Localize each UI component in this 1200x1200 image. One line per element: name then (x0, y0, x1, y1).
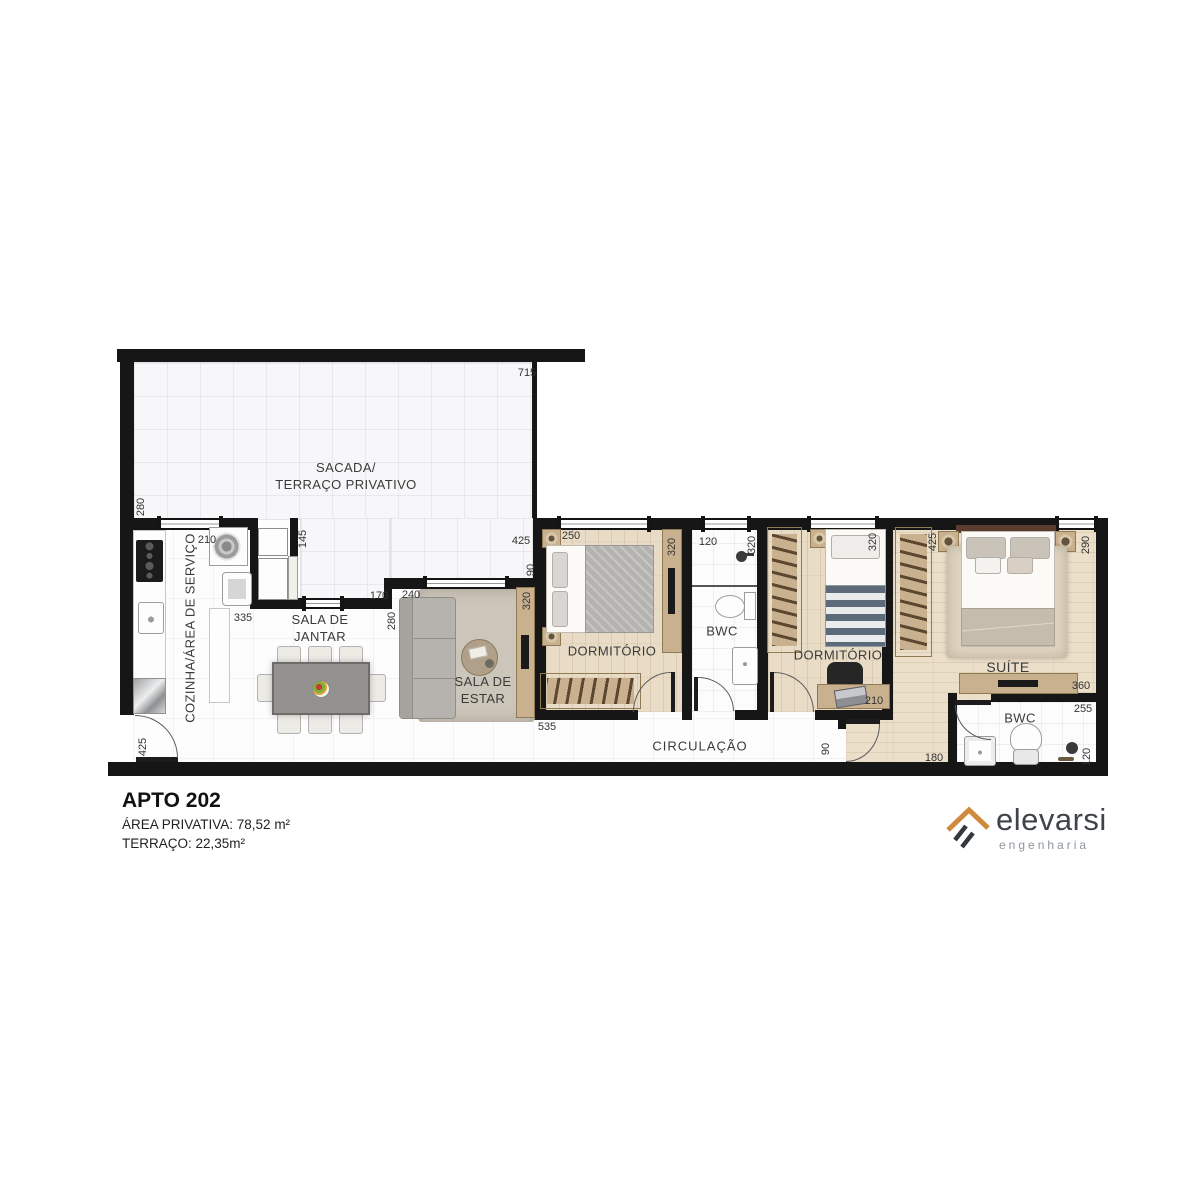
kitchen-island-counter (209, 608, 230, 703)
pillow (552, 552, 568, 588)
wall-bedroom1-right (682, 518, 692, 720)
dimension-label: 280 (135, 498, 147, 516)
room-label-sacada: SACADA/TERRAÇO PRIVATIVO (275, 460, 416, 494)
dimension-label: 145 (297, 530, 309, 548)
dimension-label: 320 (521, 592, 533, 610)
dining-chair (368, 674, 386, 702)
dimension-label: 425 (512, 535, 530, 547)
pillow (552, 591, 568, 627)
sofa (399, 597, 456, 719)
toilet-tank (744, 592, 756, 620)
wardrobe (540, 673, 641, 709)
dimension-label: 335 (234, 612, 252, 624)
dimension-label: 240 (402, 589, 420, 601)
terrace-floor (133, 362, 533, 520)
coffee-table-cup (485, 659, 494, 668)
tv-living (521, 635, 529, 669)
terrace-floor-ext-b (390, 518, 533, 580)
toilet-seat (1013, 749, 1039, 765)
laundry-tub (222, 572, 252, 606)
floorplan-page: SACADA/TERRAÇO PRIVATIVO COZINHA/ÁREA DE… (0, 0, 1200, 1200)
pillow (966, 537, 1006, 559)
dining-chair (277, 712, 301, 734)
room-label-circulacao: CIRCULAÇÃO (652, 739, 747, 756)
toilet-bowl (715, 595, 745, 618)
suite-window (1056, 518, 1097, 530)
washing-machine (209, 527, 248, 566)
living-window (424, 578, 508, 589)
dimension-label: 120 (1081, 748, 1093, 766)
pillow (1007, 557, 1033, 574)
dimension-label: 535 (538, 721, 556, 733)
pillow (1010, 537, 1050, 559)
wall-corridor-b (735, 710, 768, 720)
room-label-suite: SUÍTE (986, 658, 1029, 676)
dimension-label: 320 (666, 538, 678, 556)
dimension-label: 290 (1080, 536, 1092, 554)
dining-chair (339, 712, 363, 734)
bathroom-sink (732, 647, 758, 685)
dimension-label: 360 (1072, 680, 1090, 692)
dimension-label: 210 (198, 534, 216, 546)
cooktop (136, 540, 163, 582)
bed-double-suite (961, 531, 1055, 647)
dimension-label: 320 (867, 533, 879, 551)
apartment-terrace-area: TERRAÇO: 22,35m² (122, 836, 245, 851)
dimension-label: 255 (1074, 703, 1092, 715)
apartment-private-area: ÁREA PRIVATIVA: 78,52 m² (122, 817, 290, 832)
dimension-label: 715 (518, 367, 536, 379)
dimension-label: 90 (525, 564, 537, 576)
closet-cabinet-b (258, 558, 288, 600)
shower-head (1066, 742, 1078, 754)
blanket (585, 545, 654, 633)
dimension-label: 320 (746, 536, 758, 554)
room-label-dormitorio1: DORMITÓRIO (568, 644, 657, 661)
closet-door (288, 556, 298, 600)
bathroom1-window (702, 518, 750, 530)
dining-chair (308, 712, 332, 734)
apartment-title: APTO 202 (122, 789, 221, 813)
bedroom1-window (558, 518, 650, 530)
closet-cabinet-a (258, 528, 288, 556)
bathroom-sink (964, 736, 996, 766)
bedroom1-door (671, 672, 675, 712)
shower-divider (692, 585, 757, 587)
shower-fixtures (1058, 757, 1074, 761)
tv-bedroom1 (668, 568, 675, 614)
room-label-estar: SALA DEESTAR (455, 674, 512, 708)
wall-suite-entry-stub (838, 715, 846, 729)
pillow (975, 557, 1001, 574)
wall-right (1096, 518, 1108, 776)
wall-left (120, 349, 134, 715)
wall-top (117, 349, 585, 362)
wall-terrace-right (532, 362, 537, 518)
wall-bathroom2-top-b (991, 693, 1096, 702)
wall-bottom (108, 762, 1108, 776)
room-label-dormitorio2: DORMITÓRIO (794, 648, 883, 665)
dimension-label: 120 (699, 536, 717, 548)
dimension-label: 180 (925, 752, 943, 764)
elevarsi-logo-icon (938, 798, 998, 854)
floor-plan: SACADA/TERRAÇO PRIVATIVO COZINHA/ÁREA DE… (0, 0, 1200, 1200)
dimension-label: 280 (386, 612, 398, 630)
fruit-bowl (312, 680, 330, 698)
dimension-label: 210 (865, 695, 883, 707)
dimension-label: 170 (370, 590, 388, 602)
dimension-label: 90 (820, 743, 832, 755)
room-label-bwc1: BWC (706, 624, 738, 641)
room-label-bwc2: BWC (1004, 711, 1036, 728)
wardrobe (767, 527, 802, 653)
dimension-label: 250 (562, 530, 580, 542)
kitchen-sink (138, 602, 164, 634)
logo-company-name: elevarsi (996, 802, 1107, 838)
striped-blanket (825, 585, 886, 647)
room-label-cozinha: COZINHA/ÁREA DE SERVIÇO (183, 533, 200, 723)
wall-corridor-a (546, 710, 638, 720)
dimension-label: 425 (927, 533, 939, 551)
logo-company-subtitle: engenharia (999, 838, 1089, 852)
tv-suite (998, 680, 1038, 687)
room-label-jantar: SALA DEJANTAR (292, 612, 349, 646)
bed-double (546, 545, 653, 633)
sofa-cushion-divider (414, 638, 456, 639)
dining-window (303, 598, 343, 609)
kitchen-cabinet (133, 678, 166, 714)
sofa-cushion-divider (414, 678, 456, 679)
bed-throw (961, 608, 1055, 646)
sofa-backrest (400, 598, 413, 718)
dimension-label: 425 (137, 738, 149, 756)
